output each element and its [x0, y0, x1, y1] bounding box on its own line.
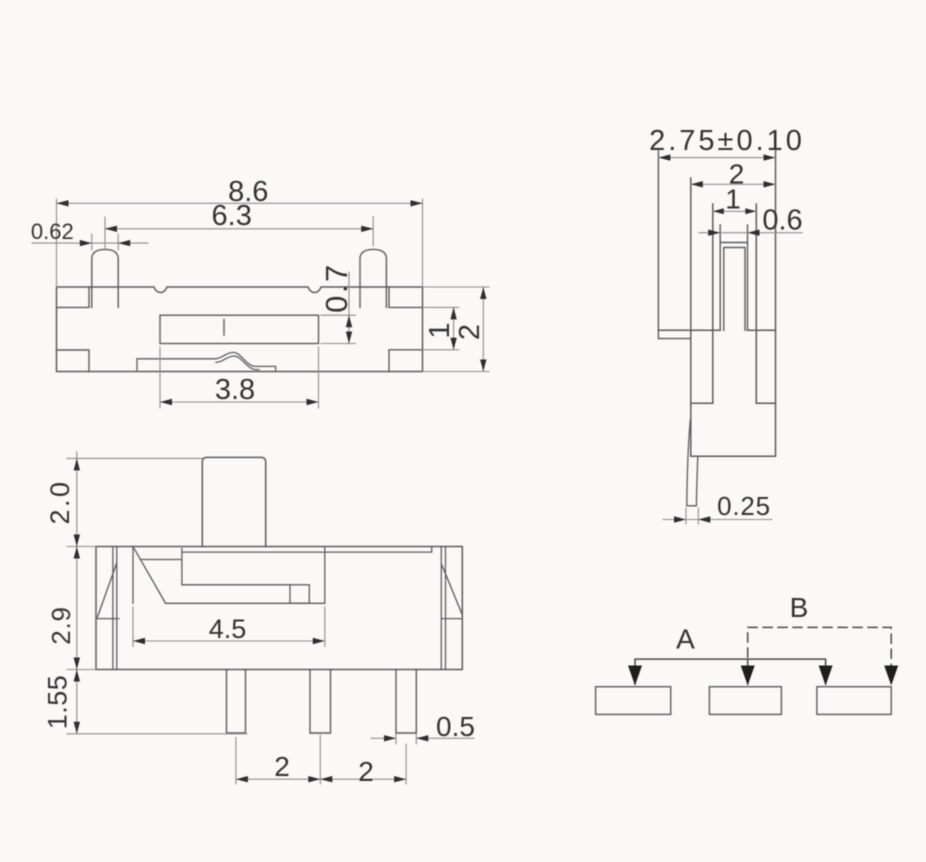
svg-text:0.25: 0.25: [717, 491, 771, 521]
svg-text:0.7: 0.7: [319, 262, 354, 313]
svg-text:0.5: 0.5: [436, 711, 475, 742]
svg-text:2: 2: [358, 756, 374, 787]
svg-text:2.75±0.10: 2.75±0.10: [649, 125, 805, 157]
svg-text:3.8: 3.8: [215, 374, 255, 406]
svg-text:6.3: 6.3: [212, 200, 252, 232]
svg-text:2.9: 2.9: [46, 606, 76, 645]
svg-text:4.5: 4.5: [209, 614, 247, 644]
svg-text:0.62: 0.62: [31, 219, 74, 244]
svg-text:1.55: 1.55: [42, 675, 72, 730]
svg-text:A: A: [676, 624, 695, 655]
svg-text:2: 2: [274, 751, 290, 782]
svg-text:1: 1: [725, 184, 741, 215]
svg-text:2: 2: [454, 324, 486, 340]
svg-text:B: B: [790, 592, 809, 623]
svg-text:0.6: 0.6: [762, 205, 802, 237]
svg-text:2.0: 2.0: [45, 479, 75, 524]
svg-text:1: 1: [424, 322, 456, 338]
